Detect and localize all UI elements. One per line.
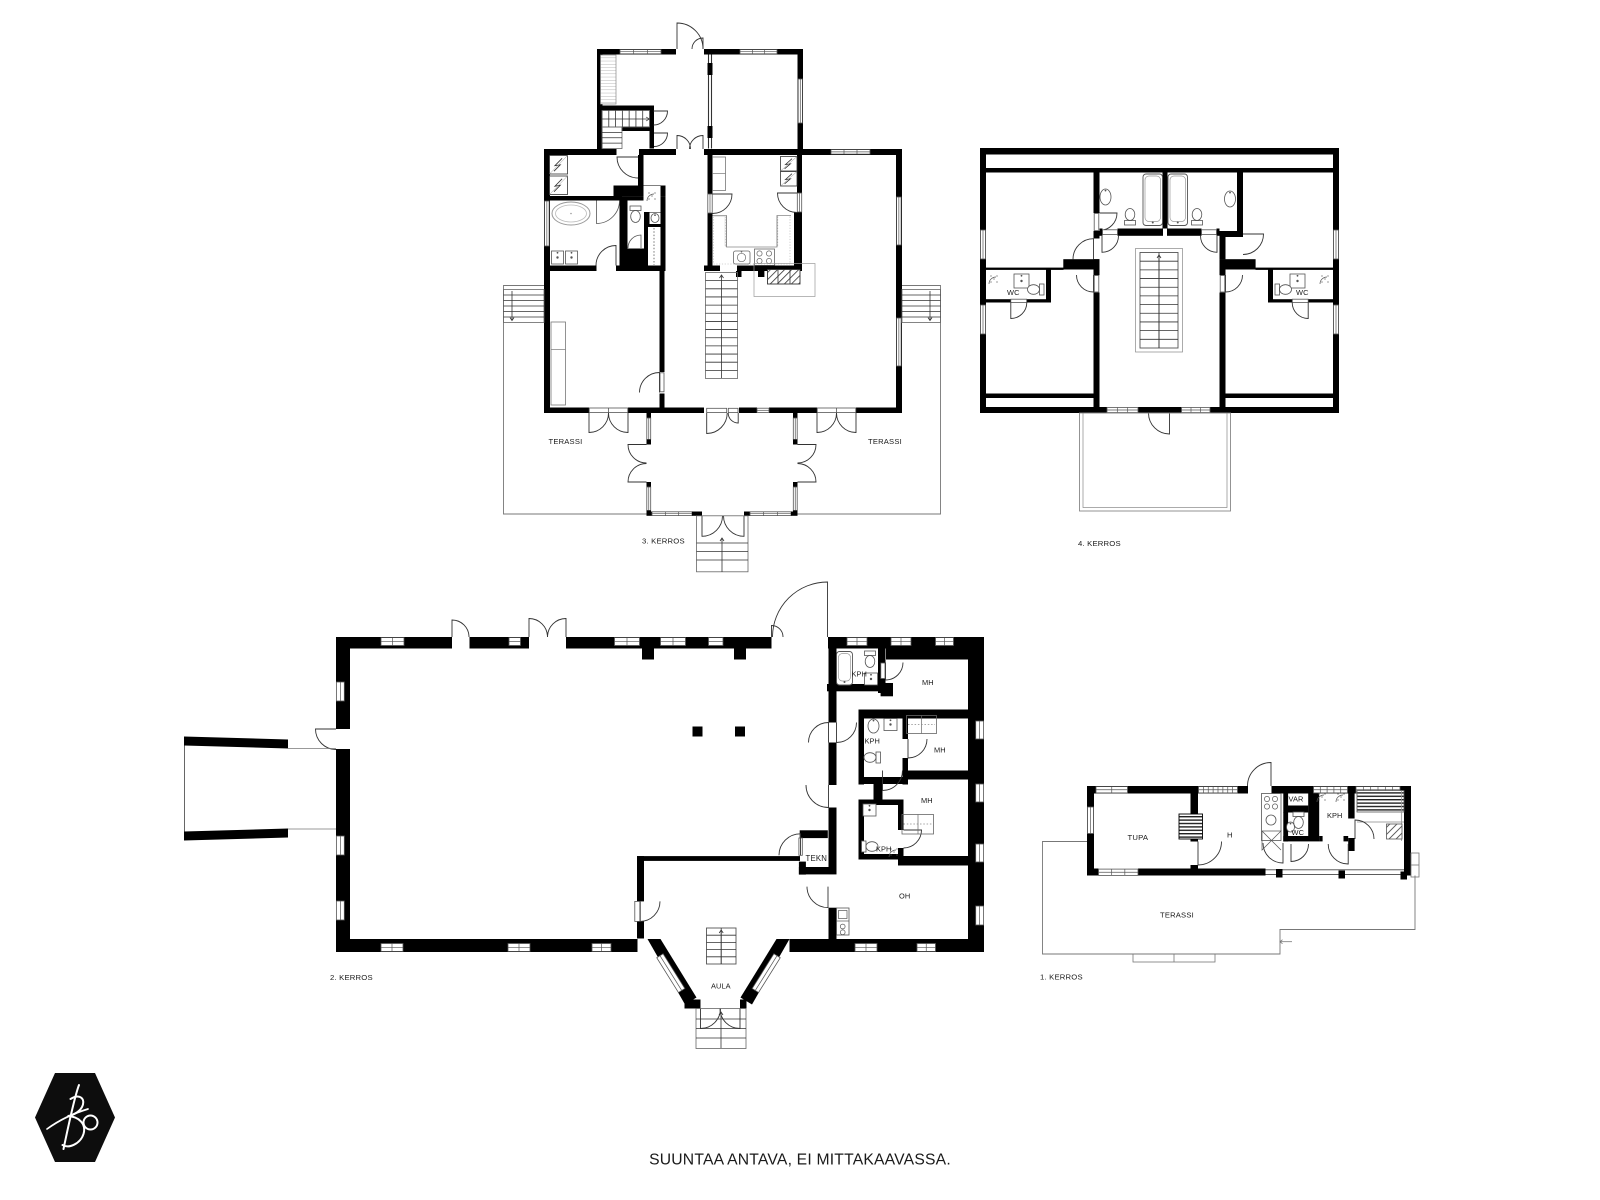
svg-text:4. KERROS: 4. KERROS: [1078, 539, 1121, 548]
svg-text:KPH: KPH: [852, 670, 868, 679]
svg-text:TERASSI: TERASSI: [549, 437, 583, 446]
svg-text:KPH: KPH: [865, 737, 881, 746]
svg-text:MH: MH: [921, 796, 933, 805]
svg-text:2. KERROS: 2. KERROS: [330, 973, 373, 982]
svg-text:TEKN: TEKN: [806, 854, 828, 863]
svg-text:KPH: KPH: [876, 845, 892, 854]
svg-text:WC: WC: [1296, 288, 1309, 297]
svg-text:VAR: VAR: [1289, 795, 1304, 804]
svg-text:MH: MH: [922, 678, 934, 687]
svg-text:SUUNTAA ANTAVA, EI MITTAKAAVAS: SUUNTAA ANTAVA, EI MITTAKAAVASSA.: [649, 1152, 951, 1169]
svg-text:3. KERROS: 3. KERROS: [642, 537, 685, 546]
svg-text:AULA: AULA: [711, 982, 731, 991]
svg-text:MH: MH: [934, 746, 946, 755]
svg-text:OH: OH: [899, 892, 910, 901]
svg-text:H: H: [1227, 831, 1233, 840]
svg-text:WC: WC: [1007, 288, 1020, 297]
svg-text:TERASSI: TERASSI: [1160, 911, 1194, 920]
svg-text:KPH: KPH: [1327, 811, 1343, 820]
svg-text:TUPA: TUPA: [1128, 833, 1149, 842]
svg-text:WC: WC: [1292, 828, 1305, 837]
svg-text:1. KERROS: 1. KERROS: [1040, 973, 1083, 982]
svg-text:TERASSI: TERASSI: [868, 437, 902, 446]
